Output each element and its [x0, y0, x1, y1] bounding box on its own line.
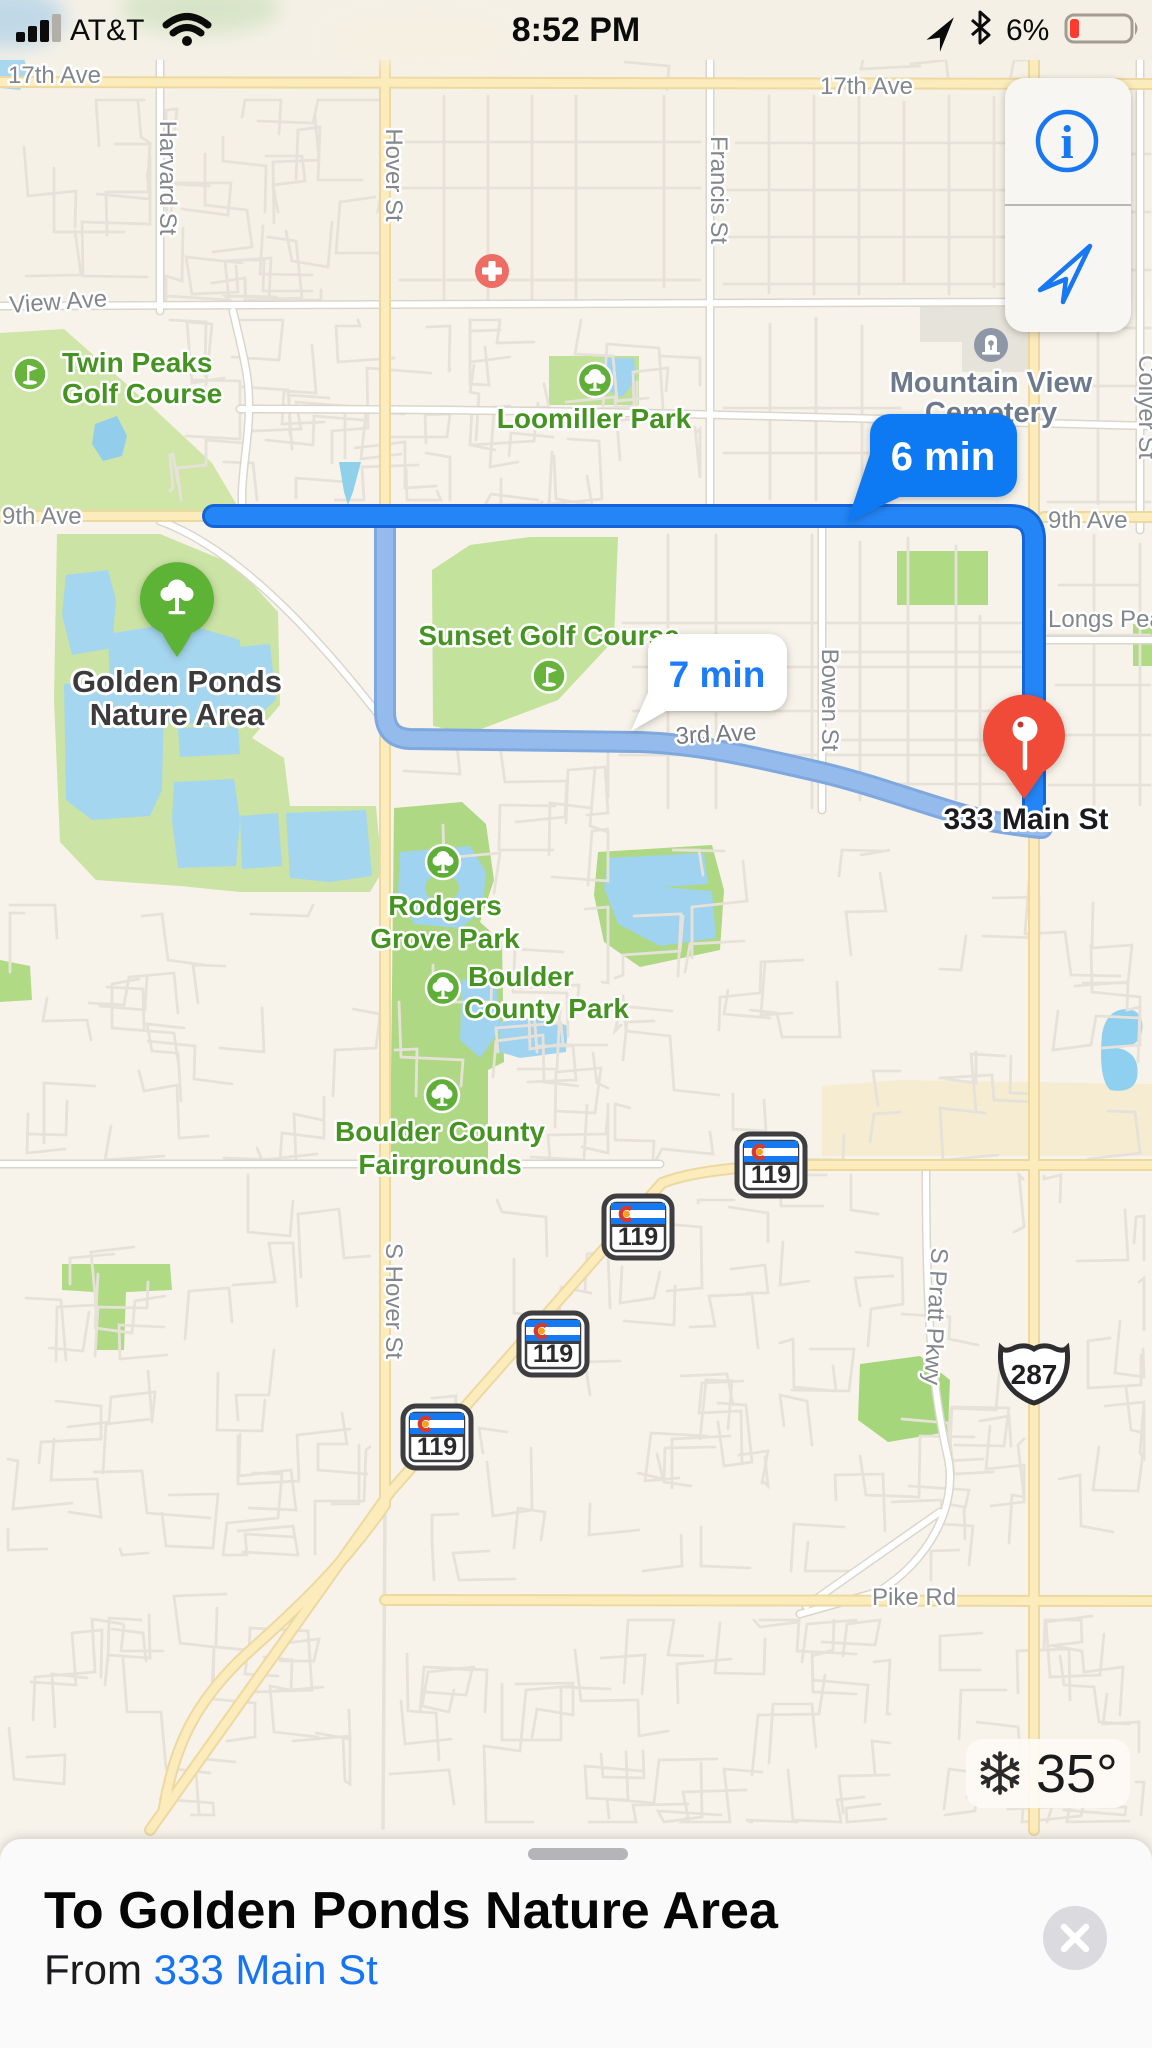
svg-text:Hover St: Hover St: [380, 128, 407, 222]
svg-text:Boulder County: Boulder County: [335, 1116, 545, 1147]
svg-text:Boulder: Boulder: [468, 961, 574, 992]
svg-text:119: 119: [417, 1433, 457, 1461]
svg-text:35°: 35°: [1036, 1744, 1118, 1804]
svg-text:287: 287: [1011, 1359, 1058, 1390]
svg-text:Pike Rd: Pike Rd: [872, 1584, 956, 1611]
svg-text:6 min: 6 min: [891, 435, 995, 479]
svg-text:Golf Course: Golf Course: [62, 378, 222, 409]
svg-text:Rodgers: Rodgers: [388, 890, 502, 921]
svg-text:Twin Peaks: Twin Peaks: [62, 347, 212, 378]
svg-text:Mountain View: Mountain View: [890, 367, 1093, 399]
svg-text:119: 119: [618, 1223, 658, 1251]
svg-text:119: 119: [751, 1161, 791, 1189]
svg-text:County Park: County Park: [464, 993, 629, 1024]
svg-text:AT&T: AT&T: [70, 14, 144, 47]
svg-text:Francis St: Francis St: [705, 136, 732, 244]
svg-text:Grove Park: Grove Park: [370, 923, 520, 954]
svg-text:17th Ave: 17th Ave: [8, 62, 101, 89]
svg-text:i: i: [1060, 116, 1073, 169]
svg-text:Golden Ponds: Golden Ponds: [72, 664, 282, 699]
svg-text:To Golden Ponds Nature Area: To Golden Ponds Nature Area: [44, 1882, 779, 1940]
svg-text:8:52 PM: 8:52 PM: [512, 11, 641, 49]
svg-text:17th Ave: 17th Ave: [820, 73, 913, 100]
svg-text:7 min: 7 min: [669, 654, 766, 695]
svg-text:Nature Area: Nature Area: [90, 697, 265, 732]
svg-text:3rd Ave: 3rd Ave: [675, 719, 757, 750]
svg-text:6%: 6%: [1006, 14, 1049, 47]
svg-text:Harvard St: Harvard St: [154, 121, 181, 236]
svg-text:Fairgrounds: Fairgrounds: [358, 1149, 521, 1180]
svg-text:119: 119: [533, 1340, 573, 1368]
svg-text:333 Main St: 333 Main St: [943, 803, 1108, 836]
svg-text:Longs Pea: Longs Pea: [1048, 606, 1152, 633]
svg-text:Collyer St: Collyer St: [1133, 355, 1152, 459]
svg-text:9th Ave: 9th Ave: [2, 503, 82, 530]
svg-text:S Hover St: S Hover St: [380, 1243, 407, 1359]
svg-text:9th Ave: 9th Ave: [1048, 507, 1128, 534]
svg-text:Bowen St: Bowen St: [816, 649, 843, 752]
svg-text:From 333 Main St: From 333 Main St: [44, 1946, 378, 1993]
svg-text:Loomiller Park: Loomiller Park: [497, 403, 692, 434]
svg-text:Sunset Golf Course: Sunset Golf Course: [418, 620, 679, 651]
